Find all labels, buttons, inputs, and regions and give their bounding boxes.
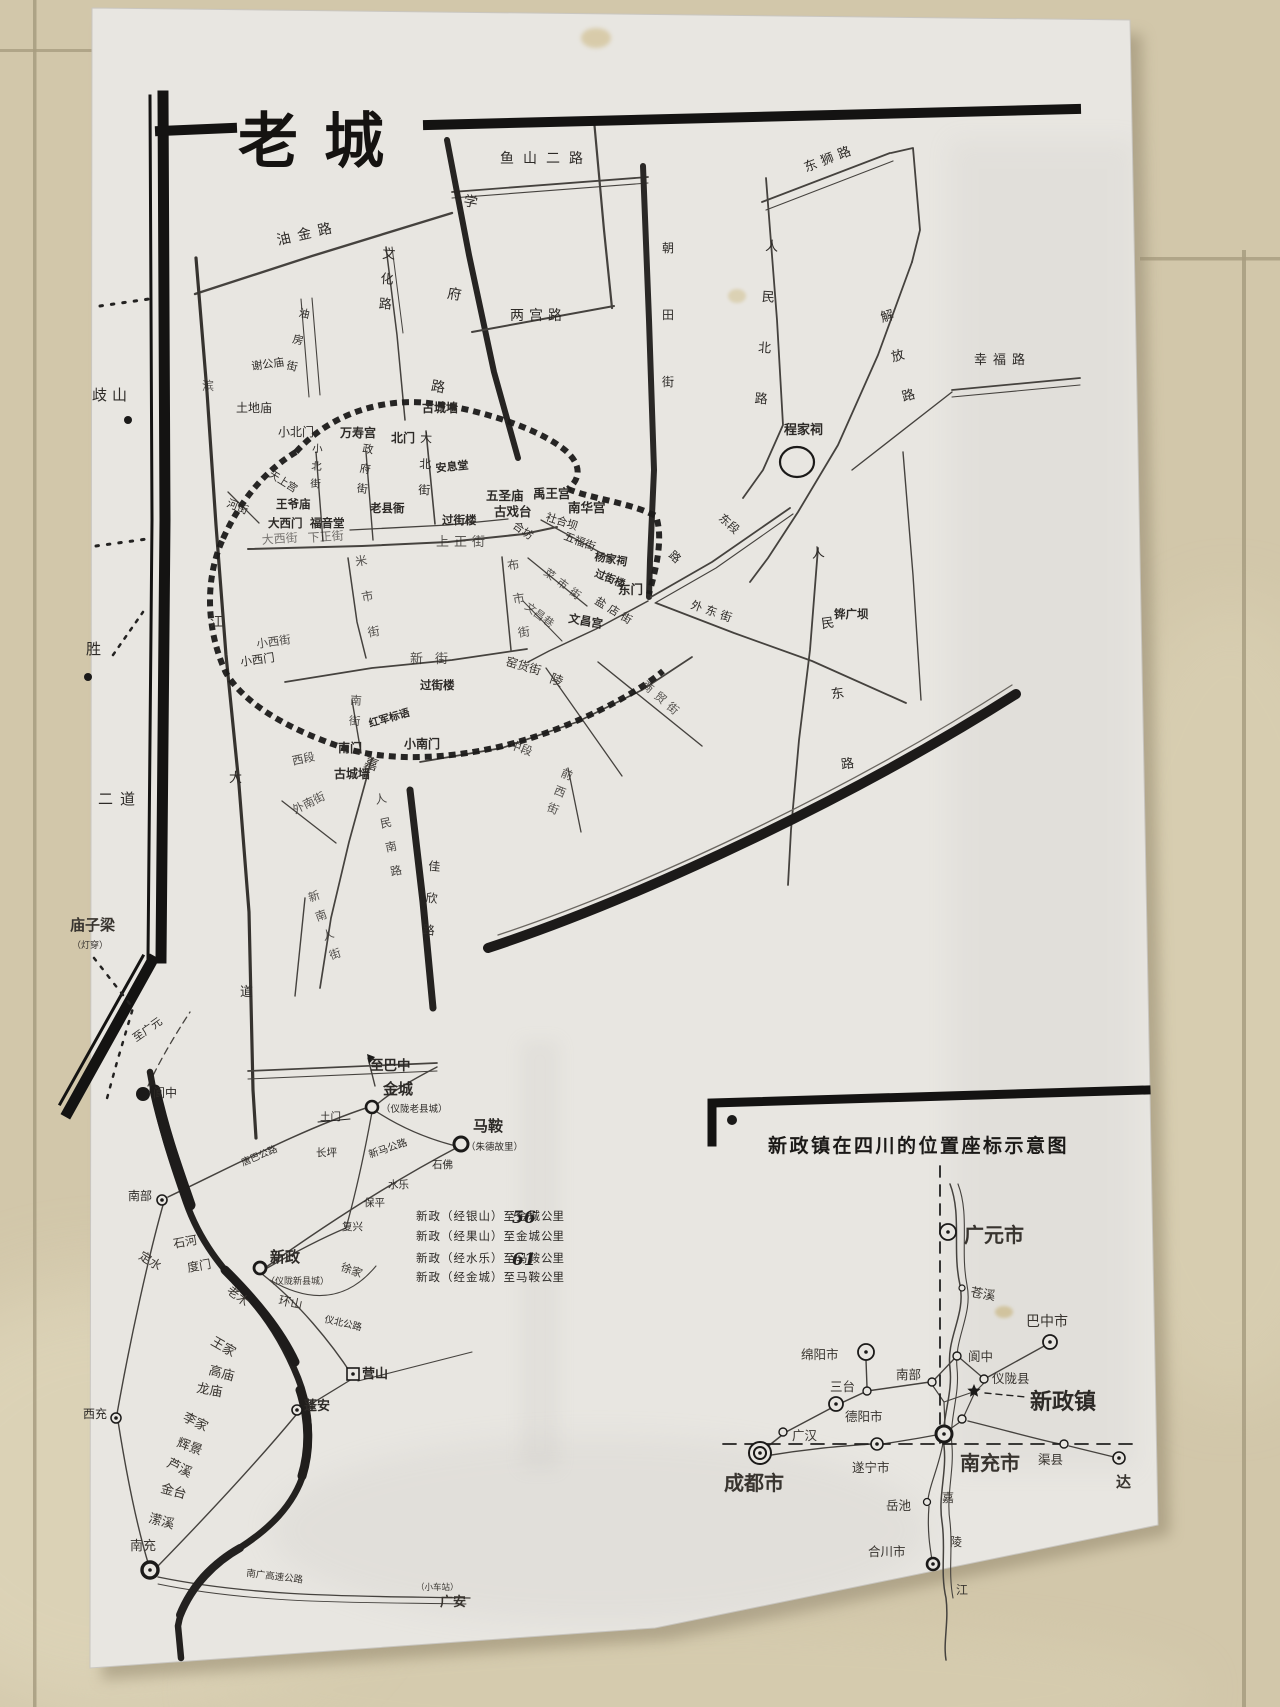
place-marker xyxy=(727,1115,737,1125)
map-border xyxy=(161,96,165,958)
place-marker xyxy=(864,1350,868,1354)
distance-unit: 公里 xyxy=(541,1251,564,1265)
map-label: 成都市 xyxy=(724,1471,784,1495)
map-label: 广汉 xyxy=(792,1428,818,1443)
place-marker xyxy=(160,1198,164,1202)
map-label: 广元市 xyxy=(964,1223,1024,1247)
map-label: 南部 xyxy=(896,1367,921,1382)
map-label: 阆中 xyxy=(968,1349,993,1364)
tile-grout-line xyxy=(1242,250,1246,1707)
place-marker xyxy=(366,1101,378,1113)
map-label: 新政 xyxy=(270,1248,301,1266)
place-marker xyxy=(959,1285,965,1291)
place-marker xyxy=(254,1262,266,1274)
paper-sheet xyxy=(90,8,1170,1680)
map-label: 道 xyxy=(240,985,253,1000)
map-label: 过街楼 xyxy=(420,678,455,692)
map-label: （灯穿） xyxy=(72,939,108,951)
place-marker xyxy=(928,1378,936,1386)
map-label: （朱德故里） xyxy=(466,1141,523,1153)
place-marker xyxy=(953,1352,961,1360)
map-label: 仪陇县 xyxy=(992,1371,1030,1386)
place-marker xyxy=(931,1562,935,1566)
map-label: 保平 xyxy=(364,1196,385,1209)
tile-grout-line xyxy=(33,0,37,1707)
map-label: 大西门 xyxy=(268,516,303,530)
map-label: 大 xyxy=(229,771,242,786)
map-label: 庙子梁 xyxy=(70,916,116,934)
distance-note: 新政（经果山）至金城 xyxy=(416,1229,541,1243)
map-label: 石佛 xyxy=(432,1158,453,1171)
map-label: 王爷庙 xyxy=(276,497,311,511)
distance-note: 新政（经金城）至马鞍 xyxy=(416,1270,541,1284)
map-label: 土地庙 xyxy=(236,401,272,415)
map-label: 江 xyxy=(956,1583,968,1597)
map-label: 二道 xyxy=(98,790,142,808)
inset-title: 新政镇在四川的位置座标示意图 xyxy=(768,1134,1069,1157)
paper-stain xyxy=(728,289,746,303)
map-label: 岳池 xyxy=(886,1498,912,1513)
map-label: 江 xyxy=(210,615,223,630)
map-label: 渠县 xyxy=(1038,1452,1063,1467)
place-marker xyxy=(295,1408,299,1412)
map-label: 五圣庙 xyxy=(486,488,524,503)
map-label: （小车站） xyxy=(416,1582,459,1593)
paper-stain xyxy=(581,28,611,48)
map-label: 德阳市 xyxy=(845,1409,883,1424)
map-label: 巴中市 xyxy=(1026,1313,1068,1330)
place-marker xyxy=(114,1416,118,1420)
place-marker xyxy=(1048,1340,1052,1344)
map-label: 小北门 xyxy=(278,424,314,439)
place-marker xyxy=(124,416,132,424)
map-label: 铧广坝 xyxy=(834,607,869,621)
place-marker xyxy=(980,1375,988,1383)
map-label: 南充 xyxy=(130,1538,156,1554)
map-border xyxy=(160,128,232,131)
place-marker xyxy=(834,1402,838,1406)
map-label: （仪陇老县城） xyxy=(381,1103,448,1115)
place-marker xyxy=(875,1442,879,1446)
map-label: 南门 xyxy=(338,740,362,755)
map-label: 三台 xyxy=(830,1379,855,1394)
map-label: 禹王宫 xyxy=(533,486,571,501)
place-marker xyxy=(136,1087,150,1101)
place-marker xyxy=(351,1372,355,1376)
map-label: 马鞍 xyxy=(473,1117,503,1135)
map-label: 绵阳市 xyxy=(801,1347,839,1362)
map-label: 南充市 xyxy=(960,1451,1020,1475)
place-marker xyxy=(1060,1440,1068,1448)
map-label: 北门 xyxy=(391,430,415,445)
map-label: 大北街 xyxy=(418,431,432,497)
map-label: 西充 xyxy=(83,1406,107,1421)
map-label: 长坪 xyxy=(316,1146,337,1159)
map-label: 古城墙 xyxy=(422,400,458,415)
place-marker xyxy=(863,1387,871,1395)
tile-grout-line xyxy=(1140,257,1280,261)
photocopy-streak xyxy=(950,140,1136,1470)
map-label: 至巴中 xyxy=(370,1057,411,1074)
place-marker xyxy=(148,1568,152,1572)
road-line xyxy=(866,1360,867,1387)
map-label: 两宫路 xyxy=(510,308,567,324)
map-label: 营山 xyxy=(362,1366,388,1382)
distance-value: 61 xyxy=(512,1250,536,1270)
map-label: 过街楼 xyxy=(442,513,477,527)
map-label: 南华宫 xyxy=(568,500,606,515)
map-label: 小南门 xyxy=(404,736,440,751)
map-label: 滨 xyxy=(202,378,214,393)
map-label: 下正街 xyxy=(307,529,344,545)
map-label: 达 xyxy=(1116,1473,1131,1491)
map-label: 土门 xyxy=(320,1110,341,1123)
distance-unit: 公里 xyxy=(541,1270,564,1284)
map-label: 新政镇 xyxy=(1030,1389,1096,1415)
tile-grout-line xyxy=(0,49,92,52)
place-marker xyxy=(946,1230,950,1234)
map-label: 复兴 xyxy=(342,1220,363,1233)
map-label: 万寿宫 xyxy=(339,425,376,440)
map-label: 大西街 xyxy=(261,531,298,547)
place-marker xyxy=(924,1499,931,1506)
map-label: 嘉 xyxy=(942,1491,954,1505)
map-label: 幸福路 xyxy=(974,352,1031,368)
place-marker xyxy=(779,1428,787,1436)
map-label: 老县衙 xyxy=(369,501,405,515)
map-label: 广安 xyxy=(440,1594,466,1610)
distance-value: 56 xyxy=(512,1208,536,1228)
map-label: 古戏台 xyxy=(494,504,532,519)
map-label: 水乐 xyxy=(388,1179,409,1191)
distance-unit: 公里 xyxy=(541,1229,564,1243)
map-label: 阆中 xyxy=(153,1085,177,1100)
map-label: 合川市 xyxy=(868,1544,906,1559)
map-label: （仪陇新县城） xyxy=(266,1275,329,1287)
place-marker xyxy=(942,1432,946,1436)
place-marker xyxy=(758,1451,762,1455)
map-label: 上正街 xyxy=(436,535,490,550)
map-label: 新街 xyxy=(410,651,460,667)
map-label: 陵 xyxy=(950,1535,962,1549)
map-label: 鱼山二路 xyxy=(500,150,592,167)
map-label: 歧山 xyxy=(92,386,132,404)
map-title: 老城 xyxy=(238,107,410,177)
map-label: 程家祠 xyxy=(784,422,823,438)
map-label: 胜 xyxy=(86,640,101,658)
place-marker xyxy=(958,1415,966,1423)
map-label: 东门 xyxy=(618,582,643,597)
map-label: 南部 xyxy=(128,1188,152,1203)
map-label: 遂宁市 xyxy=(852,1460,890,1475)
paper-stain xyxy=(995,1306,1013,1318)
place-marker xyxy=(84,673,92,681)
map-label: 蓬安 xyxy=(304,1398,330,1414)
place-marker xyxy=(1117,1456,1121,1460)
photo-of-map: 鱼山二路油金路文化路学府路两宫路东狮路人民北路解放路朝田街程家祠幸福路油房街谢公… xyxy=(0,0,1280,1707)
distance-unit: 公里 xyxy=(541,1209,564,1223)
map-label: 金城 xyxy=(382,1080,413,1098)
